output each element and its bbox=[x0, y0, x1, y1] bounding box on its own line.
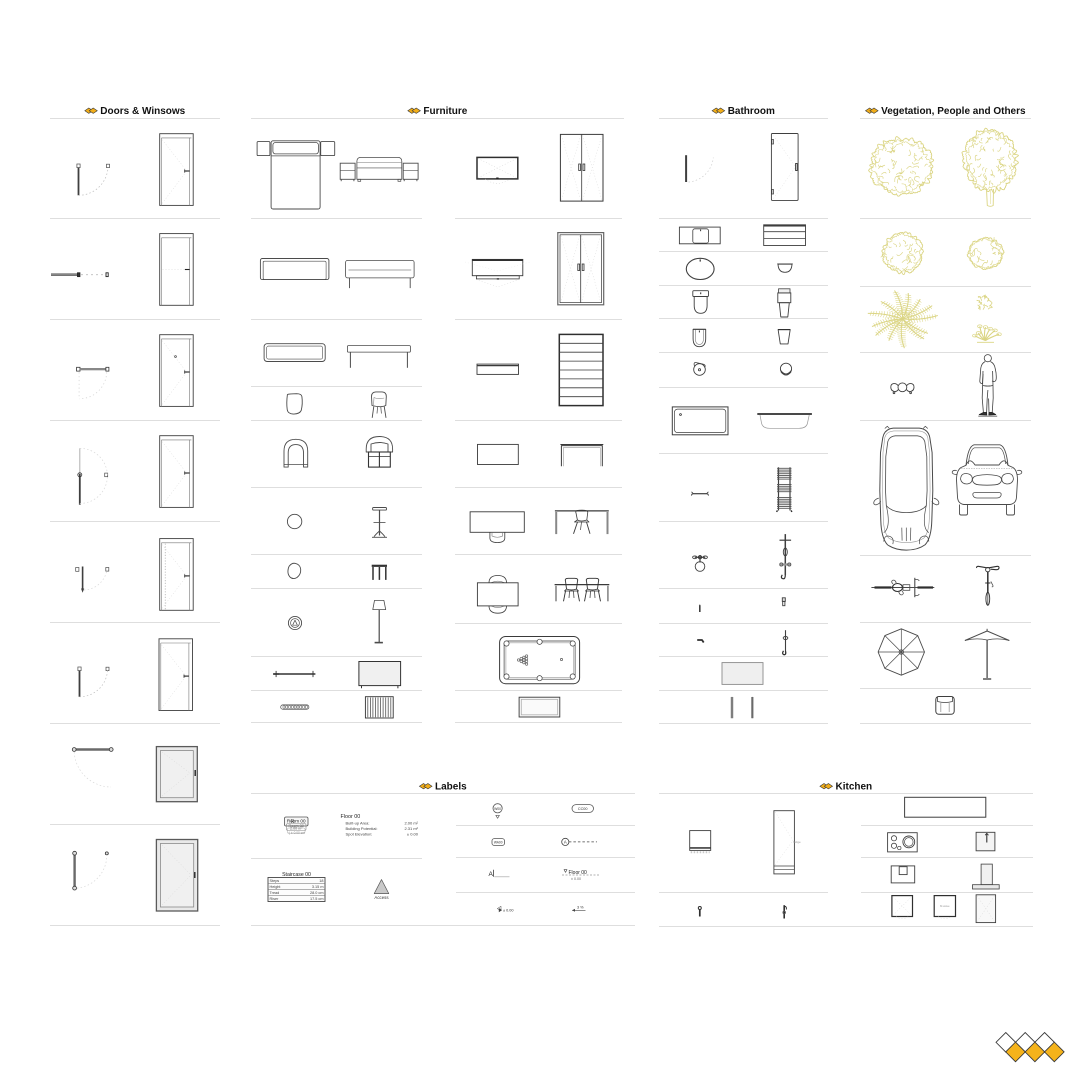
svg-text:fridge: fridge bbox=[793, 840, 801, 844]
svg-text:17.5 cm: 17.5 cm bbox=[310, 897, 324, 901]
svg-text:28.0 cm: 28.0 cm bbox=[310, 891, 324, 895]
svg-text:3 %: 3 % bbox=[577, 906, 584, 910]
svg-text:Steps: Steps bbox=[270, 879, 280, 883]
svg-text:18: 18 bbox=[319, 879, 323, 883]
svg-text:Riser: Riser bbox=[270, 897, 280, 901]
svg-text:Access: Access bbox=[374, 895, 389, 900]
svg-text:≈| ± 0.00 cm: ≈| ± 0.00 cm bbox=[287, 831, 305, 835]
svg-text:Tread: Tread bbox=[270, 891, 280, 895]
svg-text:3.15 m: 3.15 m bbox=[312, 885, 324, 889]
svg-text:2.00 m²: 2.00 m² bbox=[404, 821, 418, 826]
svg-text:Built-up Area:: Built-up Area: bbox=[346, 821, 370, 826]
svg-text:Doors & Winsows: Doors & Winsows bbox=[100, 106, 185, 117]
svg-text:Height: Height bbox=[270, 885, 282, 889]
svg-text:± 0.00: ± 0.00 bbox=[571, 877, 581, 881]
svg-text:Vegetation, People and Others: Vegetation, People and Others bbox=[881, 106, 1026, 117]
svg-text:Kitchen: Kitchen bbox=[836, 782, 873, 793]
svg-text:± 0.00: ± 0.00 bbox=[503, 909, 514, 913]
svg-text:A: A bbox=[564, 840, 567, 845]
svg-text:Bathroom: Bathroom bbox=[728, 106, 775, 117]
svg-text:Spot Elevation:: Spot Elevation: bbox=[346, 831, 373, 836]
svg-text:± 0.00: ± 0.00 bbox=[407, 831, 419, 836]
svg-text:Furniture: Furniture bbox=[423, 106, 467, 117]
svg-text:W00: W00 bbox=[494, 807, 501, 811]
svg-text:2.31 m²: 2.31 m² bbox=[404, 826, 418, 831]
svg-text:Labels: Labels bbox=[435, 782, 467, 793]
svg-text:CC00: CC00 bbox=[578, 807, 588, 811]
svg-text:WA00: WA00 bbox=[494, 840, 503, 844]
svg-text:A: A bbox=[489, 871, 494, 878]
svg-text:Building Potential:: Building Potential: bbox=[346, 826, 378, 831]
svg-text:M.wave: M.wave bbox=[940, 904, 950, 908]
svg-text:Floor 00: Floor 00 bbox=[341, 814, 361, 820]
